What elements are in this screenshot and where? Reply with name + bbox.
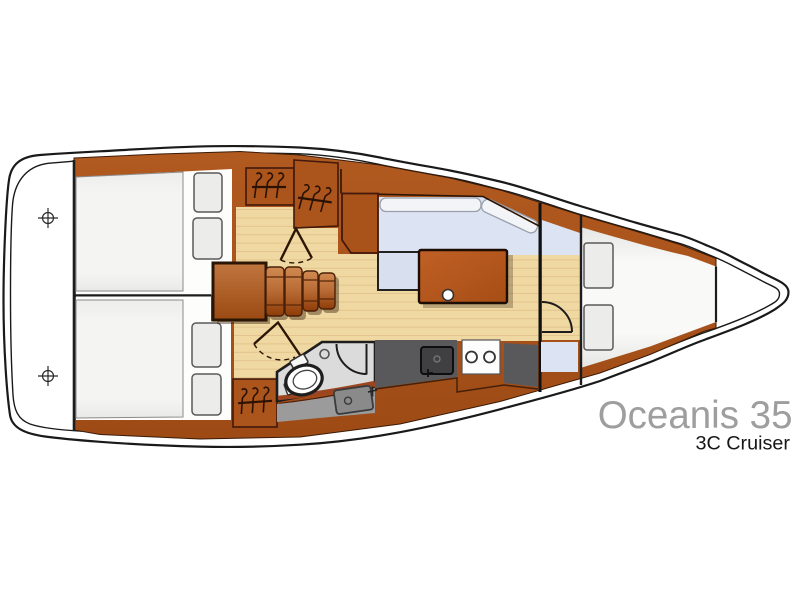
svg-text:Oceanis 35: Oceanis 35	[598, 394, 793, 437]
svg-text:3C Cruiser: 3C Cruiser	[695, 433, 790, 455]
